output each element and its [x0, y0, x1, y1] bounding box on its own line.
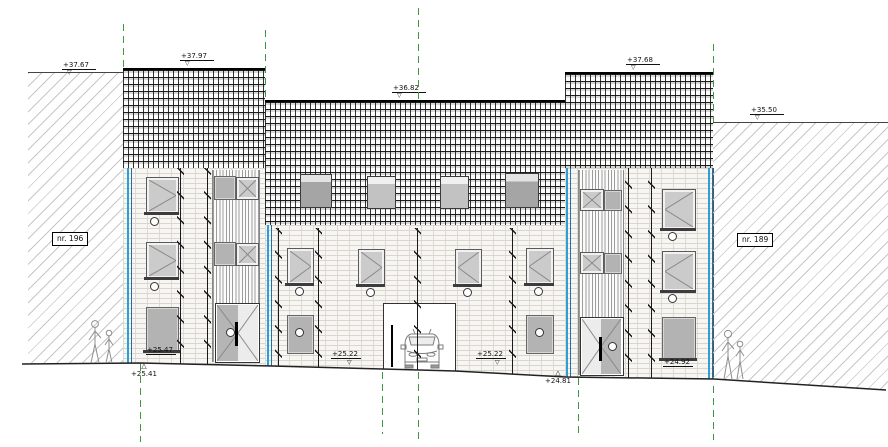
pedestrians-sketch [85, 318, 119, 365]
gridline [418, 8, 419, 100]
gridline [578, 378, 579, 434]
gridline [123, 24, 124, 68]
gridline [418, 372, 419, 440]
pedestrians-sketch [718, 328, 748, 381]
elevation-drawing-canvas: +37.67 ▽ nr. 196 +37.97 ▽ [0, 0, 888, 447]
level-triangle-icon: ▽ [347, 359, 352, 366]
gridline [713, 44, 714, 122]
gridline [713, 386, 714, 440]
ground-level-marker-right: △ +24.81 [545, 370, 571, 385]
ground-level-value: +24.81 [545, 377, 571, 385]
terrain-ground-line [0, 0, 888, 447]
gridline [382, 372, 383, 434]
floor-level-label-left: +25.47 [146, 346, 176, 355]
floor-level-label-right: +24.92 [663, 358, 693, 367]
datum-triangle-icon: △ [141, 363, 146, 370]
datum-triangle-icon: △ [555, 370, 560, 377]
gridline [265, 30, 266, 100]
level-triangle-icon: ▽ [495, 359, 500, 366]
ground-level-label-center-left: +25.22 [331, 350, 361, 359]
ground-level-value: +25.41 [131, 370, 157, 378]
ground-level-marker-left: △ +25.41 [131, 363, 157, 378]
ground-level-label-center-right: +25.22 [476, 350, 506, 359]
